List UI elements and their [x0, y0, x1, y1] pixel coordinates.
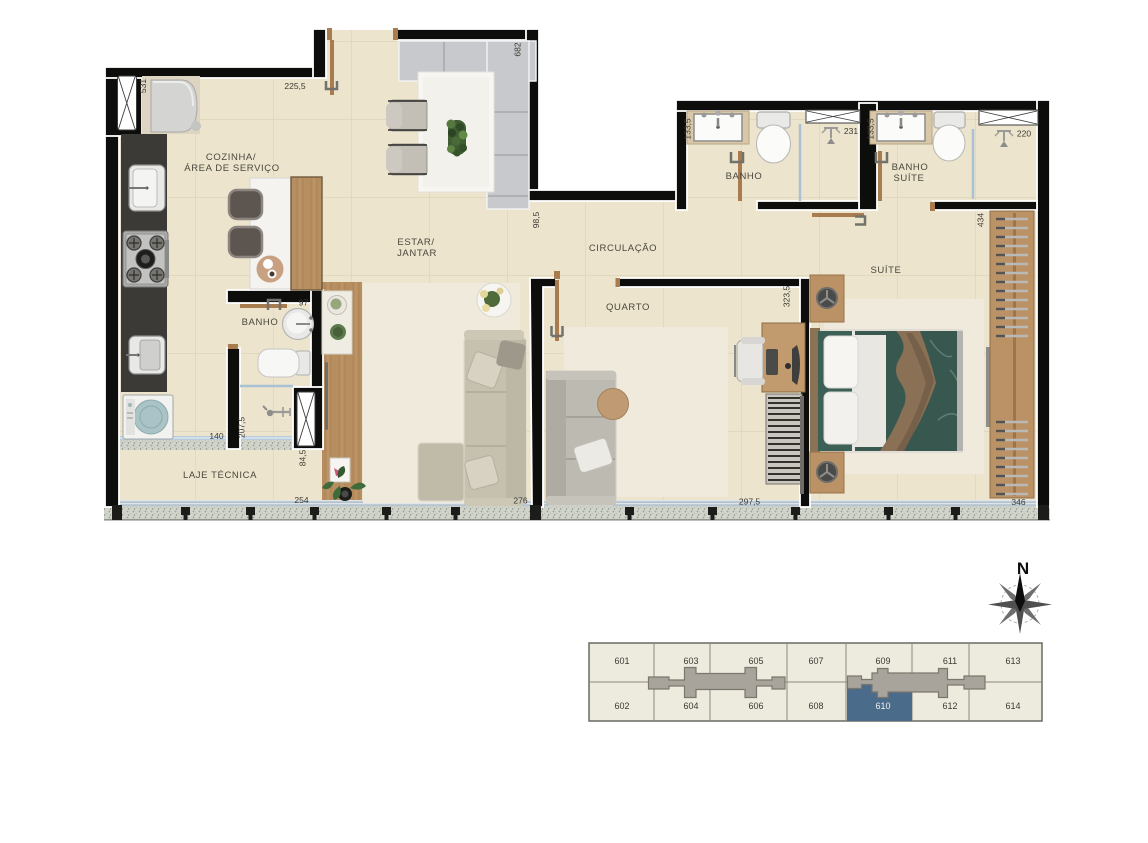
svg-text:608: 608: [808, 701, 823, 711]
svg-text:606: 606: [748, 701, 763, 711]
svg-text:254: 254: [294, 495, 308, 505]
svg-text:276: 276: [513, 496, 527, 506]
svg-text:SUÍTE: SUÍTE: [871, 265, 902, 276]
svg-text:ESTAR/: ESTAR/: [397, 237, 434, 248]
svg-text:220: 220: [1017, 129, 1031, 139]
svg-text:84,5: 84,5: [298, 449, 308, 466]
svg-text:601: 601: [614, 656, 629, 666]
svg-text:JANTAR: JANTAR: [397, 248, 437, 259]
svg-text:ÁREA DE SERVIÇO: ÁREA DE SERVIÇO: [184, 163, 279, 174]
svg-text:QUARTO: QUARTO: [606, 302, 650, 313]
svg-text:SUÍTE: SUÍTE: [894, 173, 925, 184]
svg-text:98,5: 98,5: [531, 211, 541, 228]
svg-text:607: 607: [808, 656, 823, 666]
svg-text:BANHO: BANHO: [892, 162, 929, 173]
svg-text:610: 610: [875, 701, 890, 711]
svg-text:603: 603: [683, 656, 698, 666]
svg-text:297,5: 297,5: [739, 497, 761, 507]
svg-text:612: 612: [942, 701, 957, 711]
svg-text:614: 614: [1005, 701, 1020, 711]
svg-text:225,5: 225,5: [284, 81, 306, 91]
svg-text:133,5: 133,5: [683, 118, 693, 140]
svg-text:531: 531: [138, 79, 148, 93]
svg-text:CIRCULAÇÃO: CIRCULAÇÃO: [589, 243, 657, 254]
svg-text:604: 604: [683, 701, 698, 711]
svg-text:133,5: 133,5: [866, 118, 876, 140]
svg-text:613: 613: [1005, 656, 1020, 666]
svg-text:COZINHA/: COZINHA/: [206, 152, 256, 163]
svg-text:605: 605: [748, 656, 763, 666]
svg-text:LAJE TÉCNICA: LAJE TÉCNICA: [183, 470, 257, 481]
svg-text:323,5: 323,5: [782, 286, 792, 308]
svg-text:207,5: 207,5: [237, 417, 247, 439]
svg-text:346: 346: [1011, 497, 1025, 507]
svg-text:97: 97: [299, 298, 309, 308]
svg-text:231: 231: [844, 126, 858, 136]
svg-text:BANHO: BANHO: [242, 317, 279, 328]
svg-text:BANHO: BANHO: [726, 171, 763, 182]
svg-text:682: 682: [513, 42, 523, 56]
svg-text:609: 609: [875, 656, 890, 666]
svg-text:140: 140: [209, 431, 223, 441]
svg-text:611: 611: [943, 656, 957, 666]
svg-text:602: 602: [614, 701, 629, 711]
svg-text:N: N: [1017, 559, 1029, 578]
svg-text:434: 434: [976, 213, 986, 227]
